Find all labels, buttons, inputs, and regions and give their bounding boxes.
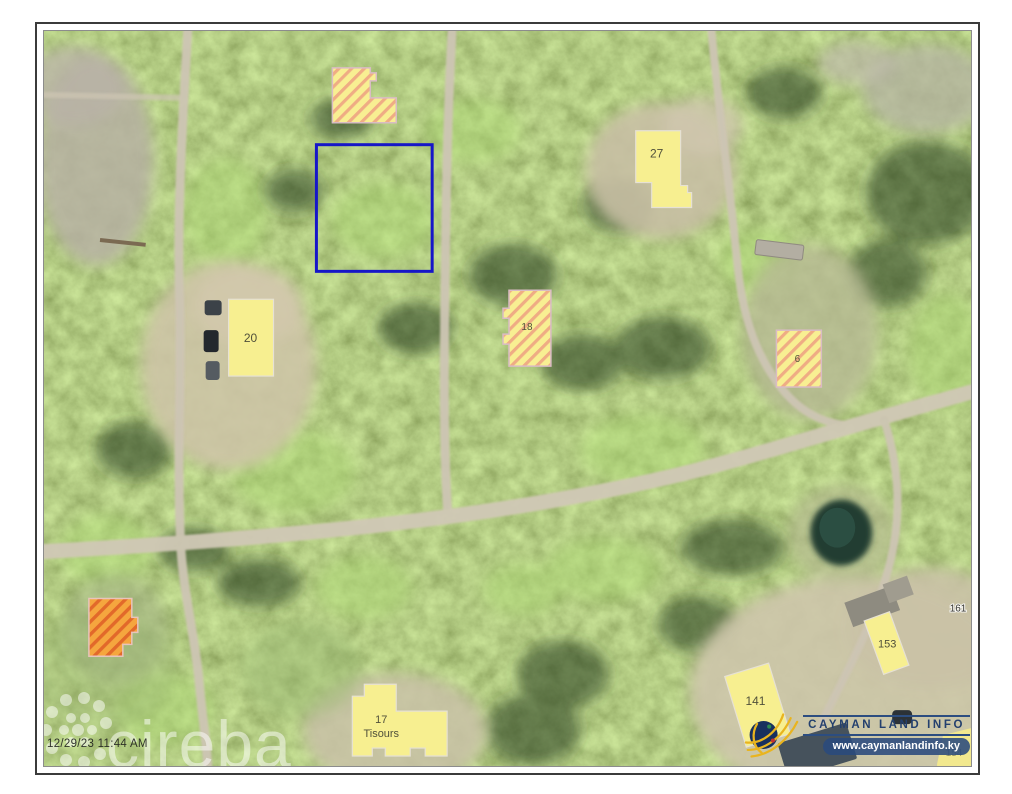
logo-title: CAYMAN LAND INFO <box>803 715 970 736</box>
map-canvas: 20 27 18 6 17 Tisours 141 153 154 161 <box>44 31 971 766</box>
globe-icon <box>743 707 801 763</box>
building-label-27: 27 <box>650 147 664 161</box>
building-label-17: 17 <box>375 714 387 726</box>
building-label-153: 153 <box>878 638 896 650</box>
road-stub-top-left <box>44 95 182 98</box>
building-label-6: 6 <box>795 354 801 365</box>
timestamp: 12/29/23 11:44 AM <box>47 738 148 750</box>
building-label-18: 18 <box>521 322 533 333</box>
lot-label-161: 161 <box>950 603 967 614</box>
vehicle <box>206 361 220 380</box>
logo-website: www.caymanlandinfo.ky <box>823 738 970 755</box>
logo-text-block: CAYMAN LAND INFO www.caymanlandinfo.ky <box>803 715 970 755</box>
pond-highlight <box>819 508 855 548</box>
building-label-20: 20 <box>244 331 258 345</box>
building-label-tisours: Tisours <box>363 728 399 740</box>
vehicle <box>204 330 219 352</box>
vehicle <box>205 300 222 315</box>
listing-map-page: 20 27 18 6 17 Tisours 141 153 154 161 <box>0 0 1012 794</box>
aerial-photo: 20 27 18 6 17 Tisours 141 153 154 161 <box>43 30 972 767</box>
cayman-land-info-logo: CAYMAN LAND INFO www.caymanlandinfo.ky <box>743 707 970 763</box>
